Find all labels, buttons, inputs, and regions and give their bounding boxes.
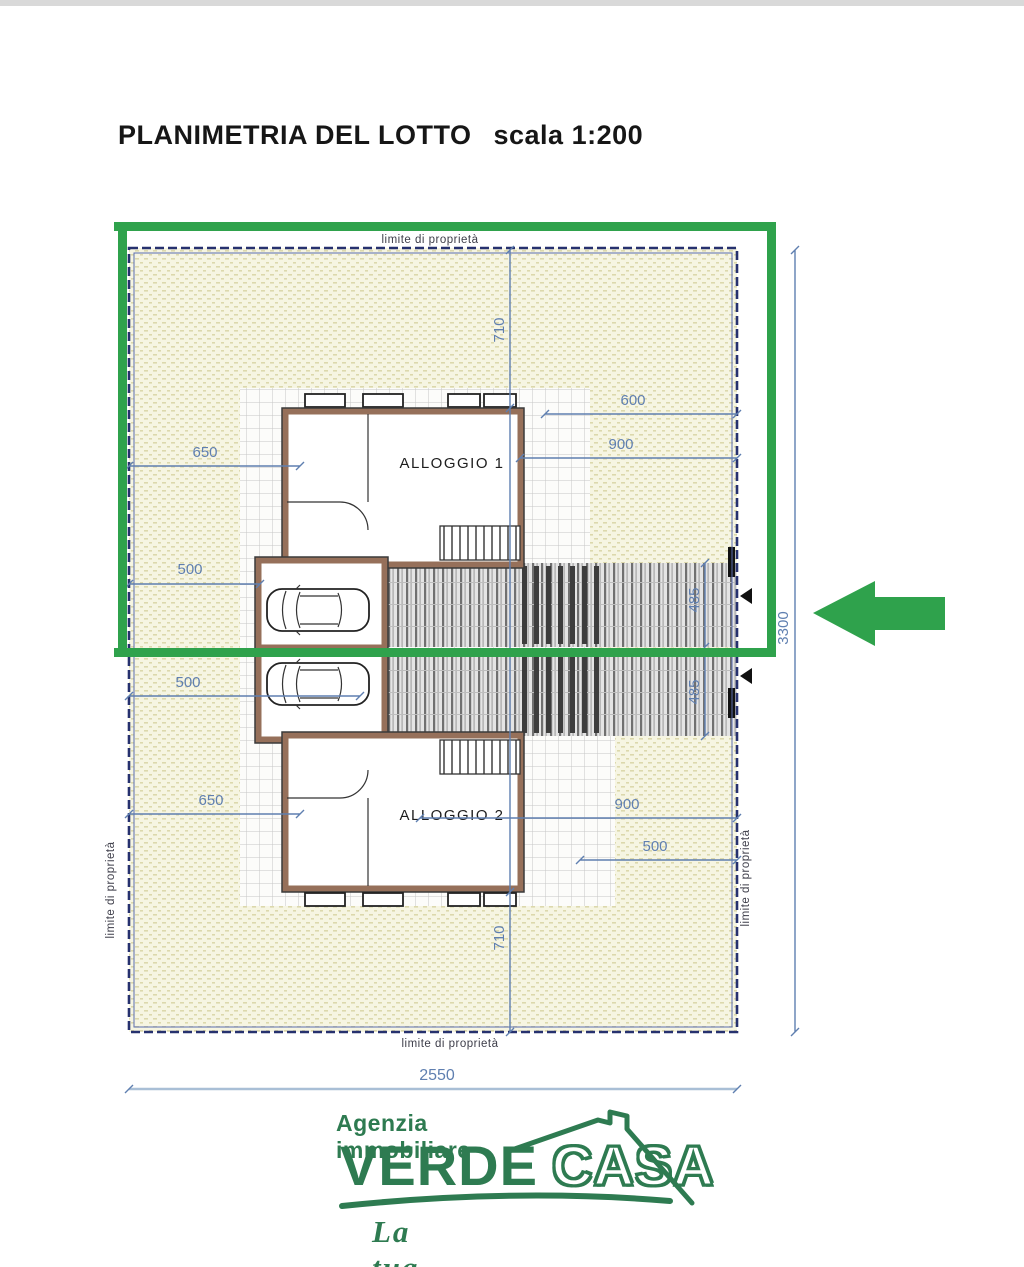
logo-brand: VERDECASA bbox=[340, 1138, 715, 1194]
dim-drive-upper-485: 485 bbox=[686, 587, 703, 612]
dim-upper-710: 710 bbox=[491, 317, 508, 342]
dim-right-3300: 3300 bbox=[775, 611, 792, 644]
driveway-lower bbox=[378, 653, 737, 736]
dim-ur-600: 600 bbox=[620, 392, 645, 409]
logo-verde: VERDE bbox=[340, 1134, 538, 1197]
car-1-icon bbox=[267, 585, 369, 635]
dim-lr-900: 900 bbox=[614, 796, 639, 813]
alloggio-2-label: ALLOGGIO 2 bbox=[399, 807, 504, 824]
dim-drive-lower-485: 485 bbox=[686, 679, 703, 704]
dim-ul-500: 500 bbox=[177, 561, 202, 578]
logo-casa: CASA bbox=[552, 1134, 715, 1197]
driveway-markers bbox=[740, 588, 752, 684]
dim-ul-650: 650 bbox=[192, 444, 217, 461]
stairs-2 bbox=[440, 740, 520, 774]
dim-ur-900: 900 bbox=[608, 436, 633, 453]
dim-ll-500: 500 bbox=[175, 674, 200, 691]
dim-lr-500: 500 bbox=[642, 838, 667, 855]
boundary-label-left: limite di proprietà bbox=[105, 841, 117, 938]
dim-bottom-2550: 2550 bbox=[419, 1067, 455, 1084]
logo-tagline: La tua Casa è qui... bbox=[372, 1214, 449, 1267]
boundary-label-bottom: limite di proprietà bbox=[401, 1038, 498, 1050]
car-2-icon bbox=[267, 659, 369, 709]
stairs-1 bbox=[440, 526, 520, 560]
green-arrow-icon bbox=[813, 581, 945, 646]
alloggio-1-label: ALLOGGIO 1 bbox=[399, 455, 504, 472]
dim-lower-710: 710 bbox=[491, 925, 508, 950]
dim-ll-650: 650 bbox=[198, 792, 223, 809]
boundary-label-top: limite di proprietà bbox=[381, 234, 478, 246]
lot-plan: ALLOGGIO 1 ALLOGGIO 2 bbox=[0, 0, 1024, 1267]
floorplan-page: PLANIMETRIA DEL LOTTOscala 1:200 bbox=[0, 0, 1024, 1267]
boundary-label-right: limite di proprietà bbox=[740, 829, 752, 926]
